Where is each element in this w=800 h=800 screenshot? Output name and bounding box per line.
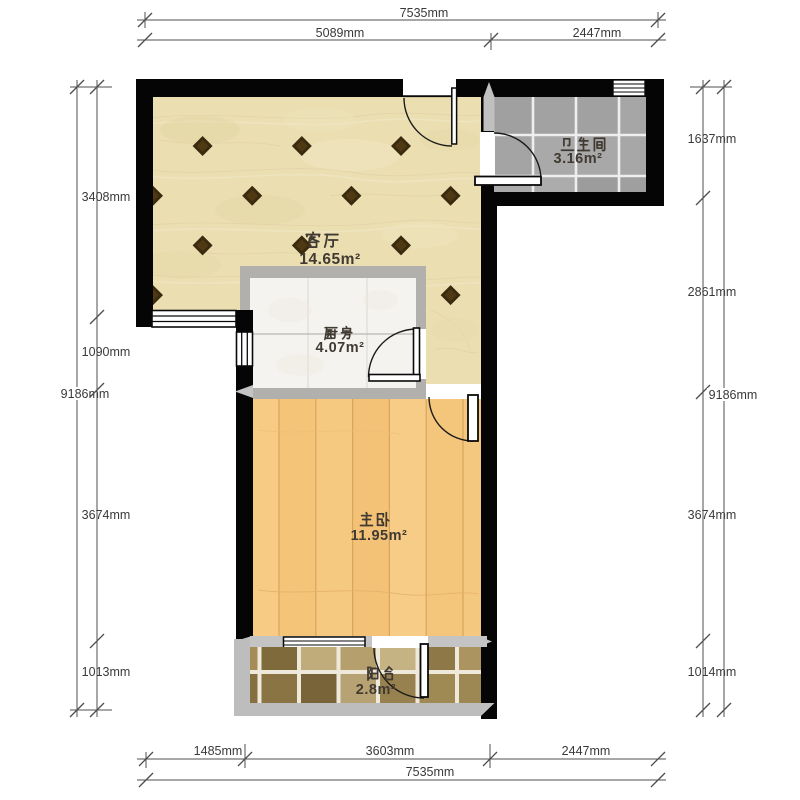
svg-text:7535mm: 7535mm xyxy=(400,6,449,20)
svg-text:1014mm: 1014mm xyxy=(688,665,737,679)
svg-text:1485mm: 1485mm xyxy=(194,744,243,758)
svg-text:2447mm: 2447mm xyxy=(573,26,622,40)
svg-text:9186mm: 9186mm xyxy=(709,388,758,402)
svg-text:1013mm: 1013mm xyxy=(82,665,131,679)
svg-text:7535mm: 7535mm xyxy=(406,765,455,779)
svg-text:2447mm: 2447mm xyxy=(562,744,611,758)
svg-text:3603mm: 3603mm xyxy=(366,744,415,758)
svg-text:2.8m²: 2.8m² xyxy=(356,682,396,698)
svg-text:9186mm: 9186mm xyxy=(61,387,110,401)
svg-text:3408mm: 3408mm xyxy=(82,190,131,204)
svg-text:3674mm: 3674mm xyxy=(82,508,131,522)
svg-text:14.65m²: 14.65m² xyxy=(299,251,360,268)
svg-text:3674mm: 3674mm xyxy=(688,508,737,522)
svg-text:3.16m²: 3.16m² xyxy=(554,151,603,167)
svg-text:2861mm: 2861mm xyxy=(688,285,737,299)
svg-text:1637mm: 1637mm xyxy=(688,132,737,146)
svg-text:11.95m²: 11.95m² xyxy=(351,528,408,544)
svg-text:1090mm: 1090mm xyxy=(82,345,131,359)
svg-text:5089mm: 5089mm xyxy=(316,26,365,40)
svg-text:4.07m²: 4.07m² xyxy=(316,340,365,356)
